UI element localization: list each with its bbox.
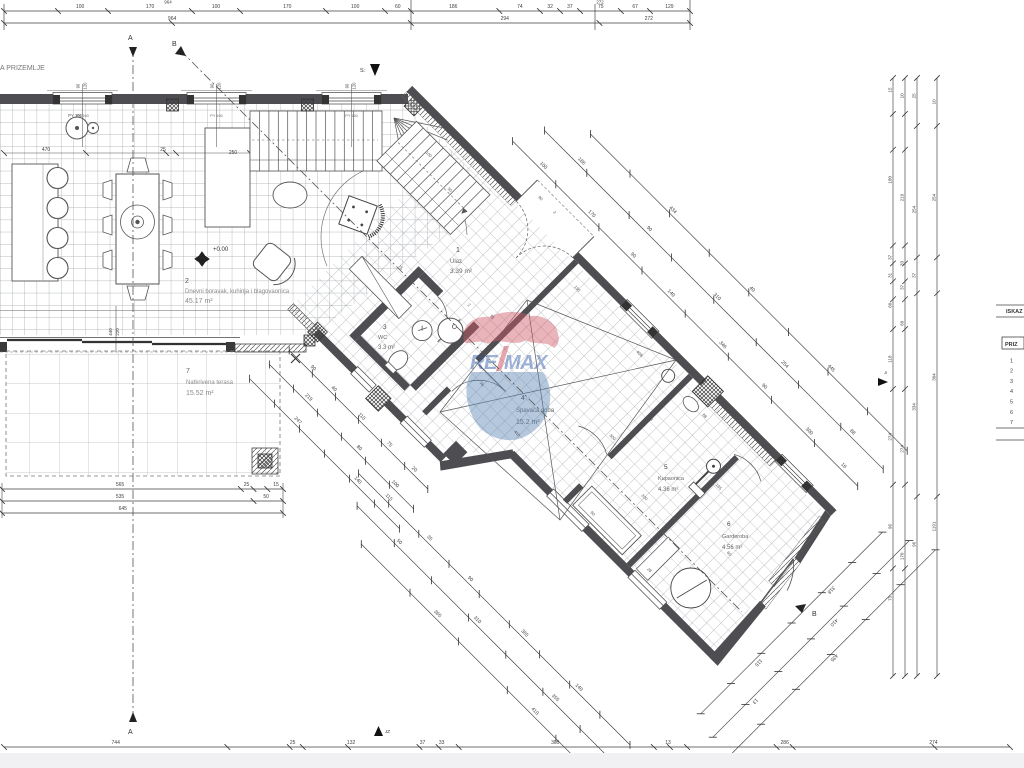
svg-text:MAX: MAX <box>504 352 549 374</box>
svg-text:180: 180 <box>888 175 893 183</box>
svg-text:6: 6 <box>1010 410 1013 416</box>
svg-text:S:: S: <box>360 68 366 74</box>
svg-text:645: 645 <box>119 506 128 512</box>
svg-text:120: 120 <box>217 82 222 90</box>
svg-text:25: 25 <box>244 482 250 488</box>
svg-text:B: B <box>812 611 817 618</box>
svg-text:60: 60 <box>900 320 905 326</box>
svg-text:254: 254 <box>912 205 917 213</box>
svg-text:170: 170 <box>146 4 155 10</box>
svg-text:15: 15 <box>888 87 893 93</box>
svg-text:4: 4 <box>1010 389 1013 395</box>
svg-text:37: 37 <box>888 254 893 260</box>
svg-text:744: 744 <box>112 740 121 746</box>
svg-text:73: 73 <box>888 595 893 601</box>
svg-text:25: 25 <box>290 740 296 746</box>
svg-text:15: 15 <box>273 482 279 488</box>
svg-text:B: B <box>172 41 177 48</box>
svg-text:5: 5 <box>664 464 668 471</box>
svg-text:96: 96 <box>888 524 893 530</box>
svg-text:120: 120 <box>83 82 88 90</box>
svg-text:272: 272 <box>596 0 604 5</box>
svg-text:37: 37 <box>567 4 573 10</box>
svg-text:2: 2 <box>1010 369 1013 375</box>
svg-text:A PRIZEMLJE: A PRIZEMLJE <box>0 65 45 72</box>
svg-text:565: 565 <box>116 482 125 488</box>
svg-text:2: 2 <box>185 278 189 285</box>
svg-text:3: 3 <box>1010 379 1013 385</box>
svg-text:10: 10 <box>900 93 905 99</box>
svg-text:RE: RE <box>470 352 498 374</box>
svg-text:964: 964 <box>164 0 172 5</box>
svg-text:254: 254 <box>932 193 937 201</box>
svg-text:129: 129 <box>665 4 674 10</box>
svg-text:37: 37 <box>912 272 917 278</box>
svg-text:100: 100 <box>212 4 221 10</box>
svg-text:67: 67 <box>632 4 638 10</box>
svg-text:ISKAZ: ISKAZ <box>1006 309 1023 315</box>
svg-text:Natkrivena terasa: Natkrivena terasa <box>186 380 234 386</box>
svg-text:+0.00: +0.00 <box>213 247 229 253</box>
svg-text:120: 120 <box>352 82 357 90</box>
svg-text:74: 74 <box>517 4 523 10</box>
svg-text:170: 170 <box>283 4 292 10</box>
svg-text:Dnevni boravak, kuhinja i blag: Dnevni boravak, kuhinja i blagovaonica <box>185 289 290 295</box>
svg-text:294: 294 <box>501 16 510 22</box>
svg-text:7: 7 <box>186 368 190 375</box>
svg-text:100: 100 <box>351 4 360 10</box>
svg-text:964: 964 <box>168 16 177 22</box>
svg-text:PY 160: PY 160 <box>345 114 357 118</box>
svg-text:186: 186 <box>449 4 458 10</box>
svg-text:60: 60 <box>395 4 401 10</box>
svg-text:1: 1 <box>456 247 460 254</box>
svg-text:274: 274 <box>929 740 938 746</box>
svg-text:A: A <box>128 729 133 736</box>
svg-text:304: 304 <box>932 373 937 381</box>
svg-text:PRIZ: PRIZ <box>1005 342 1018 348</box>
svg-text:Ulaz: Ulaz <box>450 259 462 265</box>
svg-text:1191: 1191 <box>932 521 937 531</box>
svg-text:33: 33 <box>439 740 445 746</box>
svg-text:334: 334 <box>912 403 917 411</box>
svg-text:33: 33 <box>900 260 905 266</box>
svg-text:25: 25 <box>912 93 917 99</box>
svg-text:7: 7 <box>1010 420 1013 426</box>
svg-text:10: 10 <box>932 99 937 105</box>
svg-text:37: 37 <box>420 740 426 746</box>
svg-text:45.17 m²: 45.17 m² <box>185 298 213 305</box>
svg-text:4.36 m²: 4.36 m² <box>658 487 678 493</box>
svg-text:Kupaonica: Kupaonica <box>658 476 685 482</box>
svg-text:60: 60 <box>888 302 893 308</box>
svg-text:5: 5 <box>1010 400 1013 406</box>
svg-text:535: 535 <box>116 494 125 500</box>
svg-text:305: 305 <box>551 740 560 746</box>
svg-text:3.3 m²: 3.3 m² <box>378 345 395 351</box>
svg-text:6: 6 <box>727 521 731 528</box>
svg-text:31: 31 <box>888 272 893 278</box>
svg-text:118: 118 <box>888 355 893 363</box>
svg-text:JZ: JZ <box>384 729 390 734</box>
svg-text:A: A <box>128 35 133 42</box>
svg-text:96: 96 <box>912 541 917 547</box>
svg-text:75: 75 <box>598 4 604 10</box>
svg-text:37: 37 <box>900 284 905 290</box>
svg-text:PY 160: PY 160 <box>210 114 222 118</box>
svg-text:15.52 m²: 15.52 m² <box>186 390 214 397</box>
svg-text:50: 50 <box>263 494 269 500</box>
svg-text:PY 160: PY 160 <box>76 114 88 118</box>
svg-text:219: 219 <box>900 193 905 201</box>
svg-text:440: 440 <box>108 328 113 336</box>
svg-text:1: 1 <box>1010 358 1013 364</box>
svg-text:13: 13 <box>665 740 671 746</box>
svg-text:4.56 m²: 4.56 m² <box>722 545 742 551</box>
svg-text:170: 170 <box>900 552 905 560</box>
svg-text:470: 470 <box>42 147 51 153</box>
svg-text:Garderoba: Garderoba <box>722 534 749 540</box>
svg-text:272: 272 <box>645 16 654 22</box>
svg-text:100: 100 <box>76 4 85 10</box>
svg-text:WC: WC <box>378 335 387 341</box>
svg-text:286: 286 <box>781 740 790 746</box>
svg-text:90: 90 <box>345 83 350 88</box>
svg-text:3: 3 <box>383 324 387 331</box>
svg-text:25: 25 <box>160 147 166 153</box>
svg-text:32: 32 <box>547 4 553 10</box>
svg-text:90: 90 <box>76 83 81 88</box>
svg-text:3.39 m²: 3.39 m² <box>450 268 473 275</box>
svg-text:132: 132 <box>347 740 356 746</box>
svg-text:220: 220 <box>115 328 120 336</box>
